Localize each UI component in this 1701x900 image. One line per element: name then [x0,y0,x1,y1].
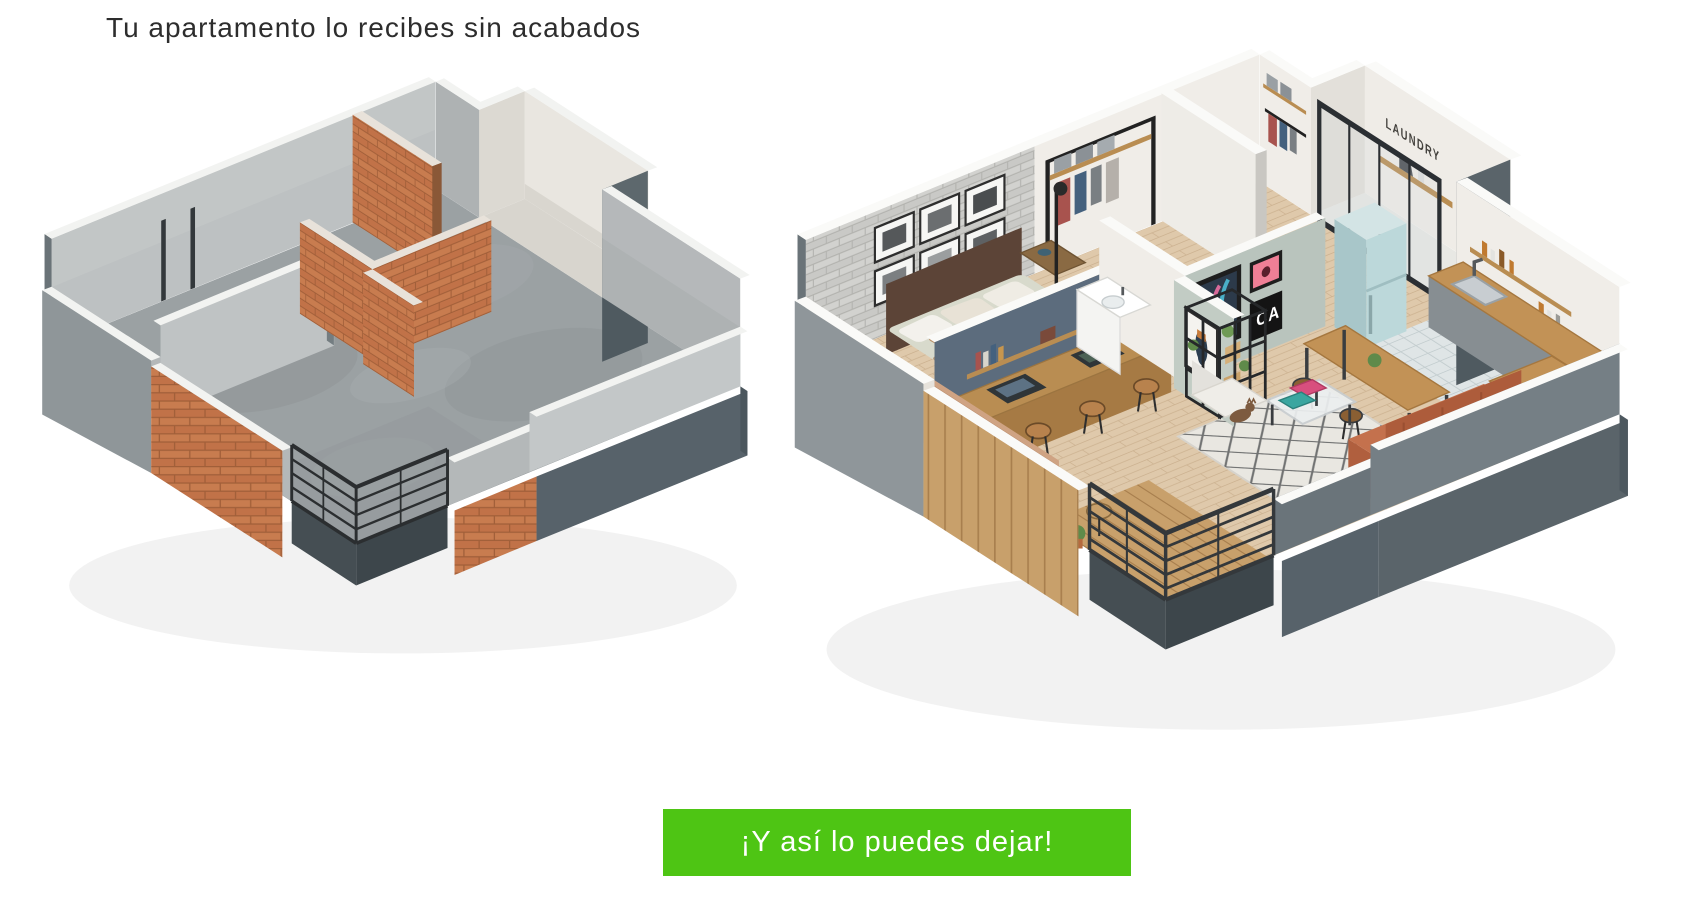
floorplan-unfinished [28,56,778,712]
annex-north-wall [479,91,525,218]
page-title: Tu apartamento lo recibes sin acabados [106,12,641,44]
floorplan-furnished: LAUNDRY [778,24,1664,799]
floorplan-furnished-svg: LAUNDRY [778,24,1664,799]
caption-banner: ¡Y así lo puedes dejar! [663,809,1131,876]
page: Tu apartamento lo recibes sin acabados [0,0,1701,900]
floorplan-unfinished-svg [28,56,778,712]
caption-banner-label: ¡Y así lo puedes dejar! [741,826,1054,859]
table-plant [1368,353,1382,367]
